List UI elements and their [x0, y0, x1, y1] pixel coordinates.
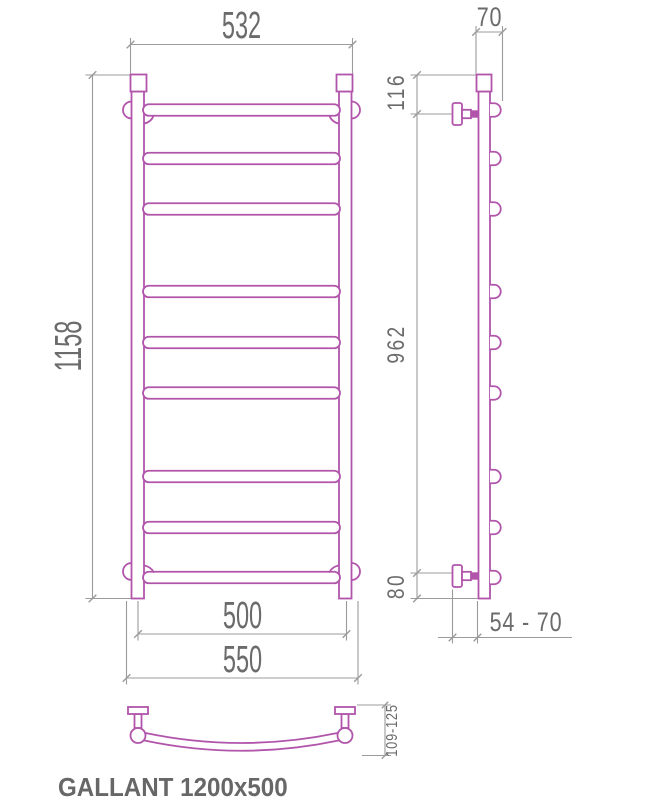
dim-label-arc-depth: 109-125 [384, 704, 402, 757]
fillet-top-right [330, 116, 339, 124]
side-post-cap [477, 75, 492, 92]
bracket-stem-left [135, 714, 142, 728]
left-post-cap [131, 75, 147, 92]
fillet-top-left [145, 116, 154, 124]
technical-drawing: 532 1158 500 550 70 [0, 0, 645, 802]
left-post [132, 92, 145, 599]
right-post-cap [337, 75, 353, 92]
right-post [339, 92, 352, 599]
bracket-stem-right [342, 714, 349, 728]
dim-bar-length: 500 [134, 593, 350, 640]
towel-bar-1 [143, 104, 340, 116]
dim-label-wall-clearance: 54 - 70 [490, 608, 563, 638]
drawing-canvas: 532 1158 500 550 70 [0, 0, 645, 802]
dim-height: 1158 [46, 71, 131, 602]
dim-label-bottom-width: 550 [223, 637, 262, 680]
bar-stub-4 [490, 285, 501, 299]
bottom-valve-nut [471, 572, 479, 579]
bracket-plate-right [335, 707, 355, 714]
dim-wall-clearance: 54 - 70 [438, 590, 572, 644]
towel-bar-6 [143, 387, 340, 399]
towel-bar-7 [143, 471, 340, 483]
bottom-view [128, 707, 355, 751]
bar-stub-9 [490, 571, 501, 585]
front-view [123, 75, 360, 599]
side-view [453, 75, 501, 599]
side-post [479, 92, 491, 599]
dim-arc-depth: 109-125 [357, 702, 401, 759]
bottom-valve-handle [453, 565, 463, 587]
towel-bar-8 [143, 522, 340, 534]
bar-stub-8 [490, 521, 501, 535]
dim-label-height: 1158 [46, 321, 89, 372]
dim-label-span: 962 [382, 324, 410, 363]
bar-stub-6 [490, 386, 501, 400]
towel-bar-5 [143, 337, 340, 349]
post-section-right [338, 728, 353, 743]
towel-bar-9 [143, 572, 340, 584]
dim-side-vertical: 116 962 80 [382, 71, 478, 602]
dim-top-width: 532 [127, 3, 357, 73]
dim-label-top-offset: 116 [382, 73, 410, 111]
bar-stub-1 [490, 103, 501, 117]
dim-label-depth: 70 [477, 3, 503, 33]
top-valve-handle [453, 103, 463, 125]
bar-stub-3 [490, 202, 501, 216]
bar-stub-7 [490, 470, 501, 484]
bottom-valve-stem [462, 572, 471, 580]
dim-label-bar-length: 500 [223, 593, 262, 636]
product-label: GALLANT 1200x500 [58, 773, 288, 802]
towel-bar-3 [143, 203, 340, 215]
dim-label-top-width: 532 [222, 3, 261, 46]
dim-label-bottom-offset: 80 [382, 573, 410, 599]
top-valve-nut [471, 110, 479, 117]
curved-bar-top-edge [146, 733, 338, 743]
bracket-plate-left [128, 707, 148, 714]
curved-bar-bottom-edge [145, 741, 339, 751]
bar-stub-2 [490, 152, 501, 166]
towel-bar-2 [143, 153, 340, 165]
post-section-left [131, 728, 146, 743]
bar-stub-5 [490, 336, 501, 350]
towel-bar-4 [143, 286, 340, 298]
top-valve-stem [462, 110, 471, 118]
